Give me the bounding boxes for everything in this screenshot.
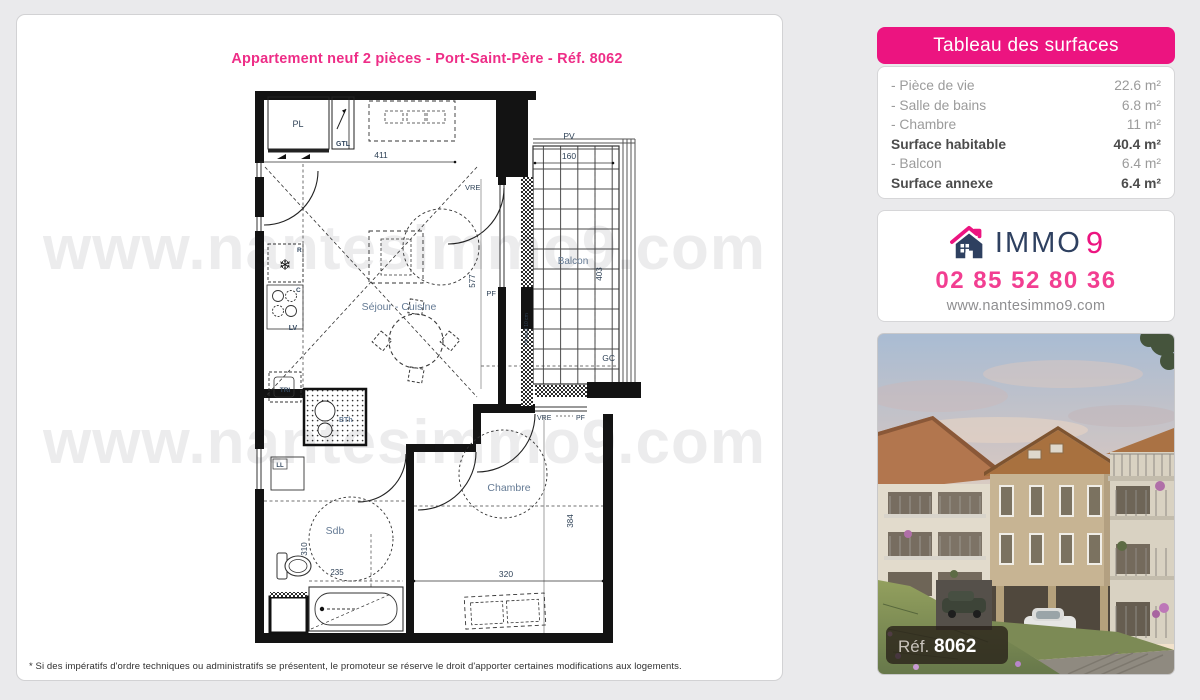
toilet-icon [277,553,311,579]
label-c: C [296,287,301,294]
dim-411: 411 [374,150,388,160]
label-pv: PV [563,131,575,141]
storage-box [270,592,307,633]
label-sdb: Sdb [326,525,345,537]
bth-room [304,389,366,445]
surface-label: - Chambre [891,115,956,135]
dim-577: 577 [468,274,477,288]
chambre-door-swing [418,452,476,510]
surface-row-total: Surface annexe 6.4 m² [891,174,1161,194]
chambre-window-swing [477,414,535,472]
surface-label: Surface annexe [891,174,993,194]
surface-row: - Chambre 11 m² [891,115,1161,135]
label-vre-chambre: VRE [537,415,552,422]
dim-403: 403 [595,267,604,281]
label-gc: GC [602,353,615,363]
dim-235: 235 [330,568,344,577]
surface-row: - Balcon 6.4 m² [891,154,1161,174]
label-pf-chambre: PF [576,415,585,422]
threshold-hatch [521,177,533,287]
ref-number: 8062 [934,636,976,657]
dim-310: 310 [300,542,309,556]
label-gtl: GTL [336,141,351,148]
surface-value: 6.4 m² [1122,154,1161,174]
entry-door-swing [264,171,318,225]
surface-row-total: Surface habitable 40.4 m² [891,135,1161,155]
dim-384: 384 [566,514,575,528]
label-ht-seuil: Ht seuil 10 cm [524,313,530,345]
label-r: R [297,247,302,254]
ref-badge: Réf. 8062 [886,626,1008,664]
label-vre-sejour: VRE [465,183,480,192]
disclaimer-text: * Si des impératifs d'ordre techniques o… [29,661,770,672]
house-icon [949,224,991,262]
sejour-window [500,185,504,287]
label-ll: LL [276,463,284,469]
label-lv: LV [289,325,298,332]
washing-machine-icon [271,457,304,490]
building-render: Réf. 8062 [878,334,1174,675]
snowflake-icon: ❄ [279,257,292,274]
brand-nine: 9 [1086,225,1103,261]
surface-label: - Salle de bains [891,96,986,116]
surface-table: - Pièce de vie 22.6 m² - Salle de bains … [877,66,1175,199]
center-building [984,426,1130,644]
dim-320: 320 [499,569,513,579]
building-photo: Réf. 8062 [877,333,1175,675]
surface-label: Surface habitable [891,135,1006,155]
floor-plan-drawing: ❄ [251,89,641,649]
sdb-door-swing [358,454,406,502]
surface-value: 11 m² [1127,115,1161,135]
label-balcon: Balcon [558,256,589,267]
label-pf-sejour: PF [486,289,496,298]
listing-title: Appartement neuf 2 pièces - Port-Saint-P… [17,51,782,67]
label-sejour: Séjour - Cuisine [362,301,437,313]
dim-160: 160 [562,151,576,161]
label-bth: BTh [339,417,353,424]
bed-icon [464,593,546,629]
surface-label: - Pièce de vie [891,76,975,96]
surface-value: 6.4 m² [1121,174,1161,194]
surface-table-header: Tableau des surfaces [877,27,1175,64]
surface-value: 6.8 m² [1122,96,1161,116]
dark-car [936,580,992,630]
label-pl: PL [292,119,303,129]
surface-row: - Pièce de vie 22.6 m² [891,76,1161,96]
sdb-turning-circle [309,497,393,581]
label-chambre: Chambre [487,482,530,494]
ref-label: Réf. [898,637,929,656]
bathtub-icon [309,587,403,631]
threshold-hatch [535,385,587,397]
label-tri: TRI [280,387,291,394]
surface-row: - Salle de bains 6.8 m² [891,96,1161,116]
surface-value: 22.6 m² [1114,76,1161,96]
agency-phone: 02 85 52 80 36 [878,267,1174,295]
floor-plan-panel: Appartement neuf 2 pièces - Port-Saint-P… [16,14,783,681]
agency-card: IMMO9 02 85 52 80 36 www.nantesimmo9.com [877,210,1175,322]
surface-value: 40.4 m² [1113,135,1161,155]
right-building [1106,428,1174,644]
window-door-swing [448,188,504,244]
surface-label: - Balcon [891,154,942,174]
agency-website: www.nantesimmo9.com [878,298,1174,314]
agency-logo: IMMO9 [878,224,1174,262]
brand-immo: IMMO [995,227,1082,260]
